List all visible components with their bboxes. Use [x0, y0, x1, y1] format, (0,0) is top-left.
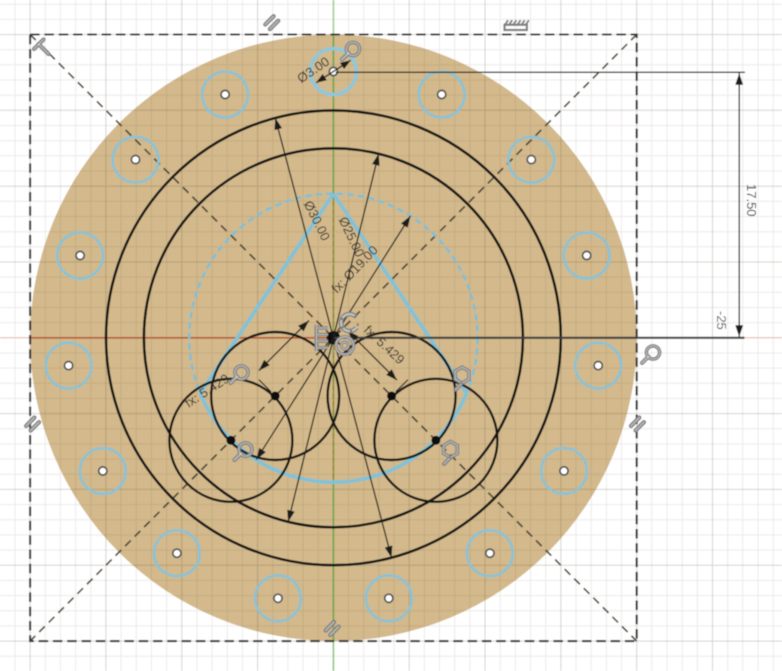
svg-text:-25: -25: [714, 311, 729, 330]
svg-text:17.50: 17.50: [744, 184, 759, 217]
